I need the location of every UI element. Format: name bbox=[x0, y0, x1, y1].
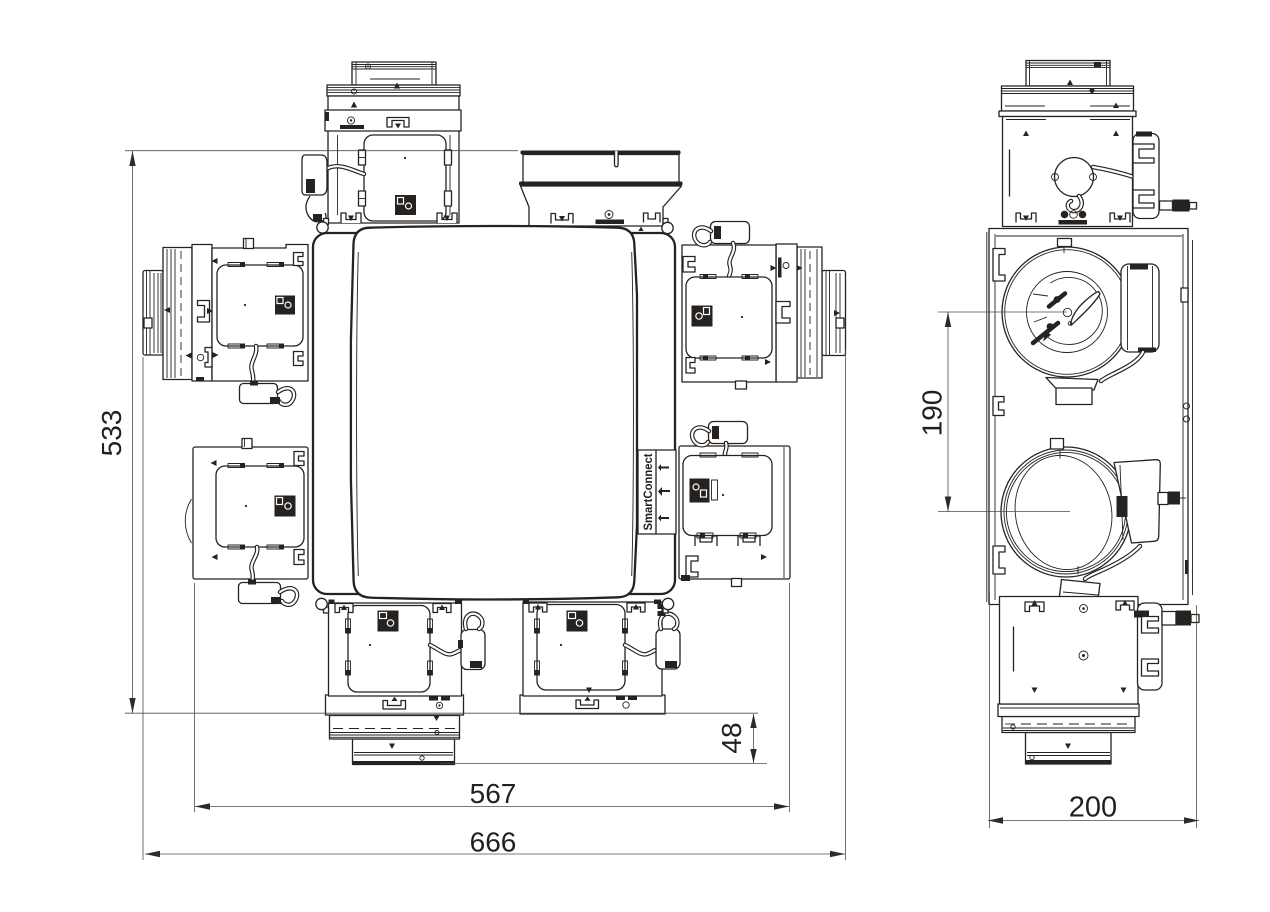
svg-text:SmartConnect: SmartConnect bbox=[643, 453, 655, 530]
svg-text:567: 567 bbox=[470, 778, 517, 809]
svg-text:666: 666 bbox=[470, 827, 517, 858]
svg-text:200: 200 bbox=[1069, 792, 1117, 824]
svg-text:533: 533 bbox=[96, 410, 127, 457]
svg-text:190: 190 bbox=[917, 390, 948, 437]
svg-text:48: 48 bbox=[716, 722, 747, 753]
